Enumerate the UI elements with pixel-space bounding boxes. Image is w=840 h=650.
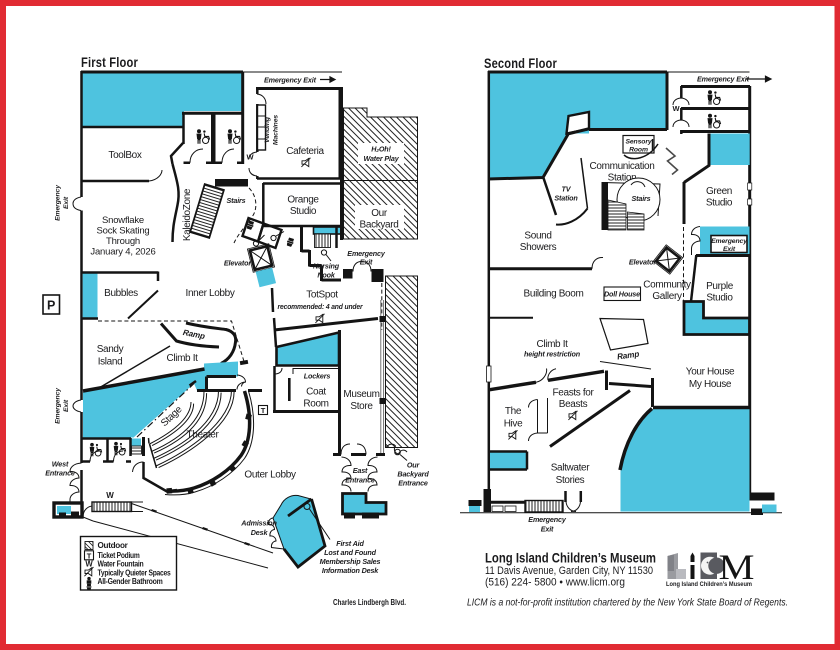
svg-text:Sound: Sound (524, 231, 551, 242)
svg-text:Our: Our (371, 208, 388, 219)
svg-text:Climb It: Climb It (166, 353, 198, 364)
svg-text:W: W (106, 491, 114, 500)
svg-text:Exit: Exit (63, 399, 70, 412)
svg-text:Hive: Hive (504, 419, 523, 430)
svg-text:Long Island Children’s Museum: Long Island Children’s Museum (485, 551, 656, 566)
svg-text:Island: Island (98, 357, 123, 368)
svg-text:First Floor: First Floor (81, 55, 138, 70)
svg-text:Emergency Exit: Emergency Exit (697, 75, 750, 84)
svg-text:Purple: Purple (706, 281, 734, 292)
svg-text:East: East (353, 466, 368, 475)
svg-text:Doll House: Doll House (604, 290, 640, 299)
svg-text:Museum: Museum (343, 389, 379, 400)
svg-text:Elevator: Elevator (224, 259, 253, 268)
svg-text:Building Boom: Building Boom (524, 289, 584, 300)
svg-text:Theater: Theater (186, 430, 219, 441)
svg-text:H₂Oh!: H₂Oh! (371, 145, 391, 154)
svg-text:Snowflake: Snowflake (102, 215, 144, 226)
svg-text:Membership Sales: Membership Sales (320, 557, 381, 566)
svg-text:Exit: Exit (63, 196, 70, 209)
svg-text:Emergency: Emergency (528, 515, 567, 524)
svg-text:LICM is a not-for-profit insti: LICM is a not-for-profit institution cha… (467, 597, 788, 609)
svg-text:Emergency: Emergency (55, 184, 62, 221)
svg-text:Elevator: Elevator (629, 258, 658, 267)
svg-text:Studio: Studio (706, 198, 733, 209)
svg-text:KaleidoZone: KaleidoZone (182, 188, 193, 241)
svg-text:Water Fountain: Water Fountain (98, 560, 144, 569)
svg-text:Sandy: Sandy (97, 344, 124, 355)
svg-text:ToolBox: ToolBox (108, 150, 141, 161)
svg-text:Showers: Showers (520, 242, 557, 253)
svg-text:Your House: Your House (686, 367, 735, 378)
svg-text:W: W (246, 153, 254, 162)
svg-text:Room: Room (303, 399, 328, 410)
svg-text:Nook: Nook (317, 271, 336, 280)
svg-text:TV: TV (562, 185, 572, 194)
svg-text:January 4, 2026: January 4, 2026 (90, 247, 155, 258)
svg-text:height restriction: height restriction (524, 350, 581, 359)
svg-text:Stairs: Stairs (226, 196, 245, 205)
svg-text:Our: Our (407, 461, 421, 470)
svg-text:Second Floor: Second Floor (484, 56, 557, 71)
svg-text:First Aid: First Aid (336, 539, 364, 548)
svg-text:Backyard: Backyard (397, 470, 429, 479)
svg-text:Store: Store (350, 401, 373, 412)
svg-text:Sock Skating: Sock Skating (96, 226, 149, 237)
svg-text:Orange: Orange (287, 195, 319, 206)
svg-text:Long Island Children’s Museum: Long Island Children’s Museum (666, 581, 752, 588)
svg-text:Emergency Exit: Emergency Exit (264, 76, 317, 85)
svg-text:Water Play: Water Play (363, 154, 399, 163)
svg-text:The: The (505, 406, 522, 417)
svg-text:Feasts for: Feasts for (553, 388, 595, 399)
svg-text:Station: Station (554, 194, 578, 203)
svg-text:Sensory: Sensory (625, 139, 652, 146)
svg-text:Exit: Exit (723, 246, 736, 253)
svg-text:Saltwater: Saltwater (551, 463, 591, 474)
svg-text:Lockers: Lockers (304, 372, 331, 381)
svg-text:Exit: Exit (541, 525, 554, 534)
svg-text:All-Gender Bathroom: All-Gender Bathroom (98, 577, 163, 586)
svg-text:Studio: Studio (706, 293, 733, 304)
svg-text:TotSpot: TotSpot (306, 290, 338, 301)
svg-text:Bubbles: Bubbles (104, 288, 138, 299)
svg-text:Community: Community (643, 280, 691, 291)
svg-text:Exit: Exit (360, 258, 373, 267)
svg-text:Cafeteria: Cafeteria (286, 146, 324, 157)
svg-text:Studio: Studio (290, 206, 317, 217)
svg-text:Backyard: Backyard (360, 220, 399, 231)
svg-text:Gallery: Gallery (652, 291, 682, 302)
svg-text:Room: Room (629, 147, 648, 154)
svg-text:Through: Through (106, 236, 140, 247)
svg-text:Green: Green (706, 186, 732, 197)
svg-text:Coat: Coat (306, 387, 326, 398)
svg-text:Stairs: Stairs (631, 194, 650, 203)
svg-text:W: W (672, 104, 680, 113)
svg-text:P: P (47, 299, 55, 313)
svg-text:Machines: Machines (273, 115, 280, 145)
svg-text:Emergency: Emergency (711, 238, 748, 245)
svg-text:Typically Quieter Spaces: Typically Quieter Spaces (98, 568, 172, 577)
svg-text:Vending: Vending (264, 116, 271, 143)
svg-text:Lost and Found: Lost and Found (324, 548, 377, 557)
svg-text:Emergency: Emergency (55, 387, 62, 424)
svg-text:Ticket Podium: Ticket Podium (98, 551, 140, 560)
svg-text:Charles Lindbergh Blvd.: Charles Lindbergh Blvd. (333, 598, 406, 607)
svg-text:Information Desk: Information Desk (322, 566, 379, 575)
svg-text:Inner Lobby: Inner Lobby (186, 288, 235, 299)
svg-text:Nursing: Nursing (313, 262, 340, 271)
svg-text:My House: My House (689, 379, 732, 390)
svg-text:Outdoor: Outdoor (98, 541, 128, 550)
svg-text:Entrance: Entrance (345, 476, 375, 485)
svg-text:11 Davis Avenue, Garden City,: 11 Davis Avenue, Garden City, NY 11530 (485, 565, 653, 577)
svg-text:Stories: Stories (556, 475, 585, 486)
svg-text:Climb It: Climb It (536, 339, 568, 350)
svg-text:Communication: Communication (590, 161, 655, 172)
svg-text:Entrance: Entrance (398, 479, 428, 488)
svg-text:Outer Lobby: Outer Lobby (244, 470, 296, 481)
svg-text:Desk: Desk (251, 528, 269, 537)
svg-text:(516) 224- 5800 • www.licm.org: (516) 224- 5800 • www.licm.org (485, 577, 625, 589)
svg-text:West: West (52, 460, 69, 469)
svg-text:Admission: Admission (240, 519, 277, 528)
svg-text:recommended: 4 and under: recommended: 4 and under (278, 302, 364, 311)
svg-text:Beasts: Beasts (559, 399, 588, 410)
